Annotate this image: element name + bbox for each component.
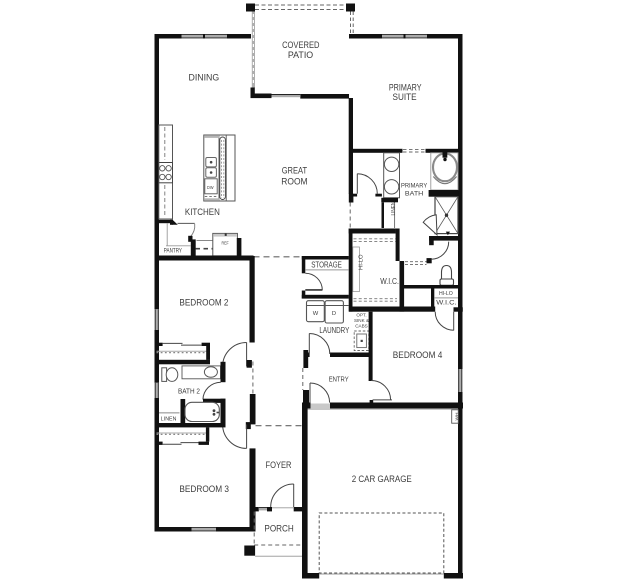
svg-text:DW: DW bbox=[207, 185, 214, 190]
svg-text:W.I.C.: W.I.C. bbox=[436, 300, 456, 307]
svg-text:PATIO: PATIO bbox=[288, 50, 313, 60]
svg-text:SINK &: SINK & bbox=[354, 318, 369, 323]
svg-text:ENTRY: ENTRY bbox=[329, 374, 349, 383]
svg-text:BATH: BATH bbox=[405, 191, 424, 198]
svg-text:REF: REF bbox=[222, 241, 229, 246]
svg-text:D: D bbox=[332, 311, 336, 317]
svg-text:BEDROOM 4: BEDROOM 4 bbox=[393, 350, 443, 360]
svg-text:CABS: CABS bbox=[355, 324, 368, 329]
svg-text:FOYER: FOYER bbox=[266, 460, 292, 470]
svg-text:BEDROOM 3: BEDROOM 3 bbox=[179, 484, 229, 494]
svg-text:PORCH: PORCH bbox=[264, 523, 293, 533]
svg-text:W: W bbox=[313, 311, 319, 317]
svg-text:WH: WH bbox=[455, 412, 459, 420]
svg-text:PRIMARY: PRIMARY bbox=[389, 82, 422, 92]
svg-text:LINEN: LINEN bbox=[161, 416, 177, 422]
svg-text:BATH 2: BATH 2 bbox=[178, 386, 200, 395]
svg-text:W.I.C.: W.I.C. bbox=[380, 277, 399, 286]
svg-text:COVERED: COVERED bbox=[282, 40, 320, 50]
svg-text:ROOM: ROOM bbox=[281, 177, 307, 187]
svg-text:LINEN: LINEN bbox=[391, 202, 397, 216]
svg-text:LAUNDRY: LAUNDRY bbox=[319, 326, 349, 335]
svg-text:HI-LO: HI-LO bbox=[439, 291, 453, 297]
svg-text:SUITE: SUITE bbox=[393, 92, 417, 102]
svg-text:KITCHEN: KITCHEN bbox=[185, 207, 220, 217]
svg-text:BEDROOM 2: BEDROOM 2 bbox=[179, 297, 228, 307]
svg-text:HI-LO: HI-LO bbox=[358, 254, 364, 270]
svg-text:STORAGE: STORAGE bbox=[311, 259, 342, 269]
svg-text:DINING: DINING bbox=[189, 73, 220, 83]
svg-text:OPT.: OPT. bbox=[356, 312, 366, 317]
svg-text:2 CAR GARAGE: 2 CAR GARAGE bbox=[352, 474, 412, 484]
svg-text:GREAT: GREAT bbox=[282, 166, 308, 176]
svg-text:PRIMARY: PRIMARY bbox=[401, 183, 428, 190]
svg-text:PANTRY: PANTRY bbox=[164, 248, 182, 254]
